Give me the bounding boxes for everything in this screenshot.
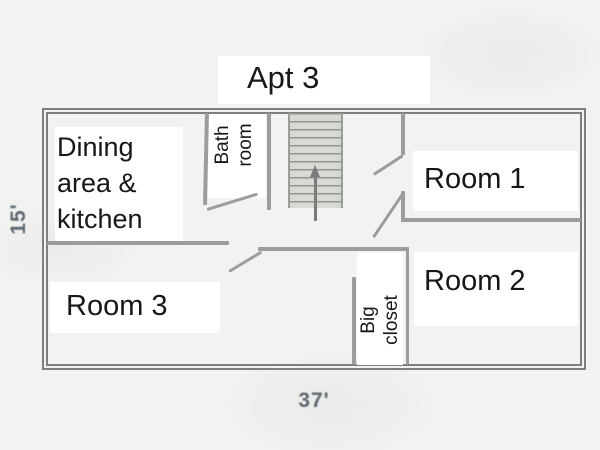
room-label-dining: Diningarea &kitchen xyxy=(57,129,143,237)
wall-hallway-upper xyxy=(401,113,405,155)
room-label-bathroom: Bathroom xyxy=(211,99,257,191)
bathroom-line2: room xyxy=(235,123,256,166)
closet-line2: closet xyxy=(381,295,402,345)
room-label-closet: Bigcloset xyxy=(357,265,403,375)
room-label-room3: Room 3 xyxy=(66,290,168,323)
closet-line1: Big xyxy=(358,306,379,333)
dimension-width: 37' xyxy=(292,389,336,413)
wall-room1-room2-divider xyxy=(401,218,581,222)
page-title: Apt 3 xyxy=(247,60,319,96)
dimension-height: 15' xyxy=(7,191,33,247)
bathroom-line1: Bath xyxy=(212,125,233,164)
wall-closet-right xyxy=(406,247,410,365)
dining-line3: kitchen xyxy=(57,204,143,234)
room-label-room1: Room 1 xyxy=(424,163,526,196)
dining-line2: area & xyxy=(57,168,137,198)
room-label-room2: Room 2 xyxy=(424,265,526,298)
floor-plan-canvas: Apt 3 Diningarea &kitchen Bathroom Room … xyxy=(0,0,600,450)
wall-hall-bottom xyxy=(258,247,409,251)
stair-up-arrow-icon xyxy=(310,165,320,177)
dining-line1: Dining xyxy=(57,132,134,162)
stair-direction-arrow-line xyxy=(314,174,317,221)
wall-bathroom-right xyxy=(267,113,271,210)
wall-closet-left xyxy=(352,277,356,364)
wall-dining-room3-divider xyxy=(47,241,229,245)
